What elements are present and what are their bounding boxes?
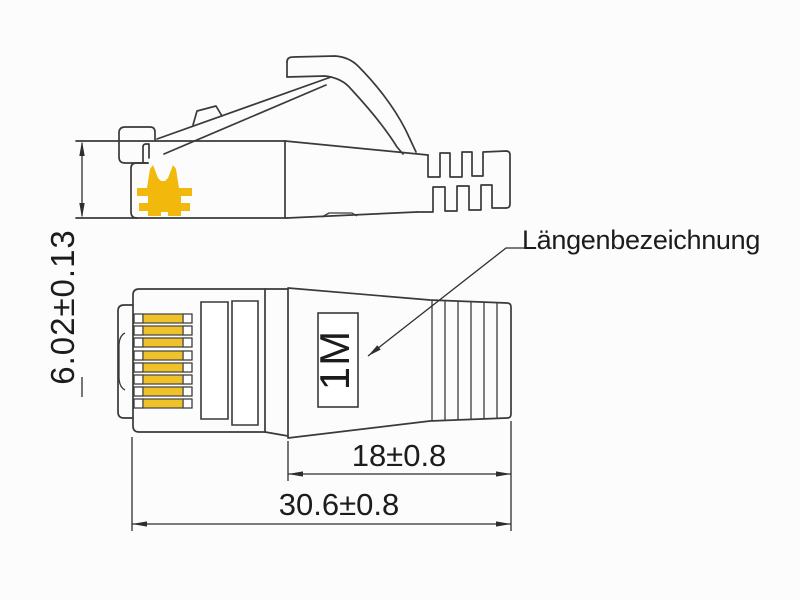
crimp-symbol-icon	[137, 165, 192, 216]
latch-arm-lower	[164, 85, 326, 154]
dim-arrow-right-18	[496, 471, 511, 476]
dim-text-boot-length: 18±0.8	[352, 438, 447, 473]
dim-arrow-right-30	[496, 521, 511, 526]
front-tab-inner	[119, 333, 125, 390]
boot-top-edge-side	[285, 141, 428, 155]
dimension-plug-height: 6.02±0.13	[44, 141, 85, 397]
latch-hook-step	[143, 144, 149, 162]
dim-arrow-down	[79, 203, 84, 218]
body-window-2	[232, 301, 258, 425]
dimension-total-length: 30.6±0.8	[132, 437, 511, 531]
length-designation-label: Längenbezeichnung	[522, 225, 760, 255]
dim-arrow-up	[79, 141, 84, 156]
side-view	[76, 56, 510, 218]
dim-arrow-left-18	[288, 471, 303, 476]
front-tab	[118, 305, 133, 418]
body-window-1	[201, 302, 228, 419]
dim-text-plug-height: 6.02±0.13	[44, 229, 81, 385]
strain-relief-ribs-top-view	[432, 301, 497, 420]
dim-arrow-left-30	[132, 521, 147, 526]
latch-arm-tab	[193, 106, 222, 125]
gold-contacts	[143, 314, 183, 408]
length-designation-annotation: Längenbezeichnung	[368, 225, 760, 356]
leader-line	[368, 248, 531, 356]
collar-band	[265, 289, 288, 436]
strain-relief-ribs-bottom	[417, 185, 506, 212]
latch-arm-upper	[157, 77, 331, 139]
top-view: 1M	[118, 288, 511, 438]
connector-technical-drawing: 1M Längenbezeichnung 6.02±0.13 18±0.8 30…	[0, 0, 800, 600]
drawing-svg: 1M Längenbezeichnung 6.02±0.13 18±0.8 30…	[0, 0, 800, 600]
boot-marking-text: 1M	[311, 330, 358, 390]
latch-tail-outer	[287, 56, 416, 152]
dim-text-total-length: 30.6±0.8	[279, 487, 399, 522]
